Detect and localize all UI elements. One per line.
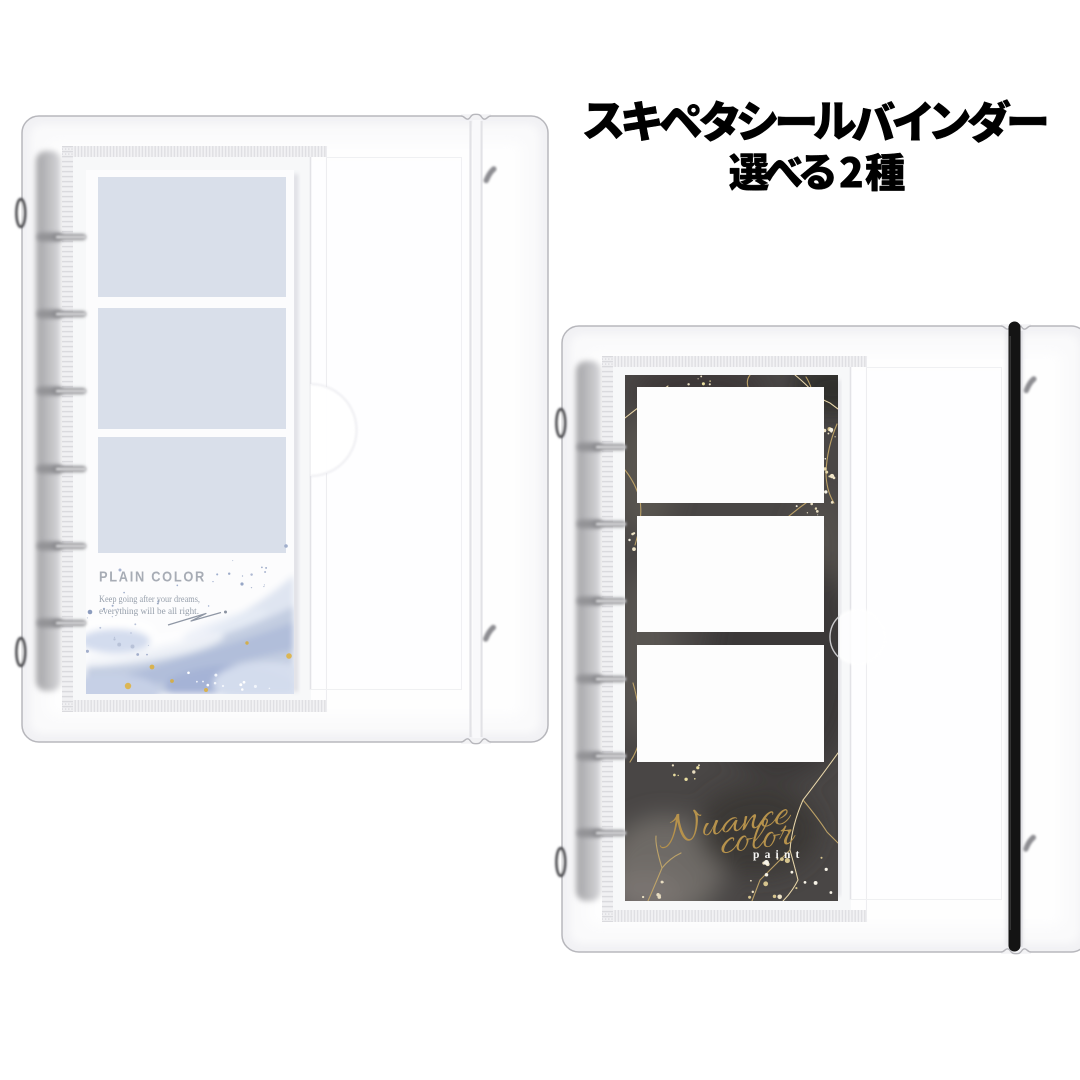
svg-text:everything will be all right.: everything will be all right. [99,606,199,616]
svg-text:Keep going after your dreams,: Keep going after your dreams, [99,594,200,604]
svg-text:paint: paint [753,849,805,861]
svg-text:PLAIN COLOR: PLAIN COLOR [99,569,206,586]
